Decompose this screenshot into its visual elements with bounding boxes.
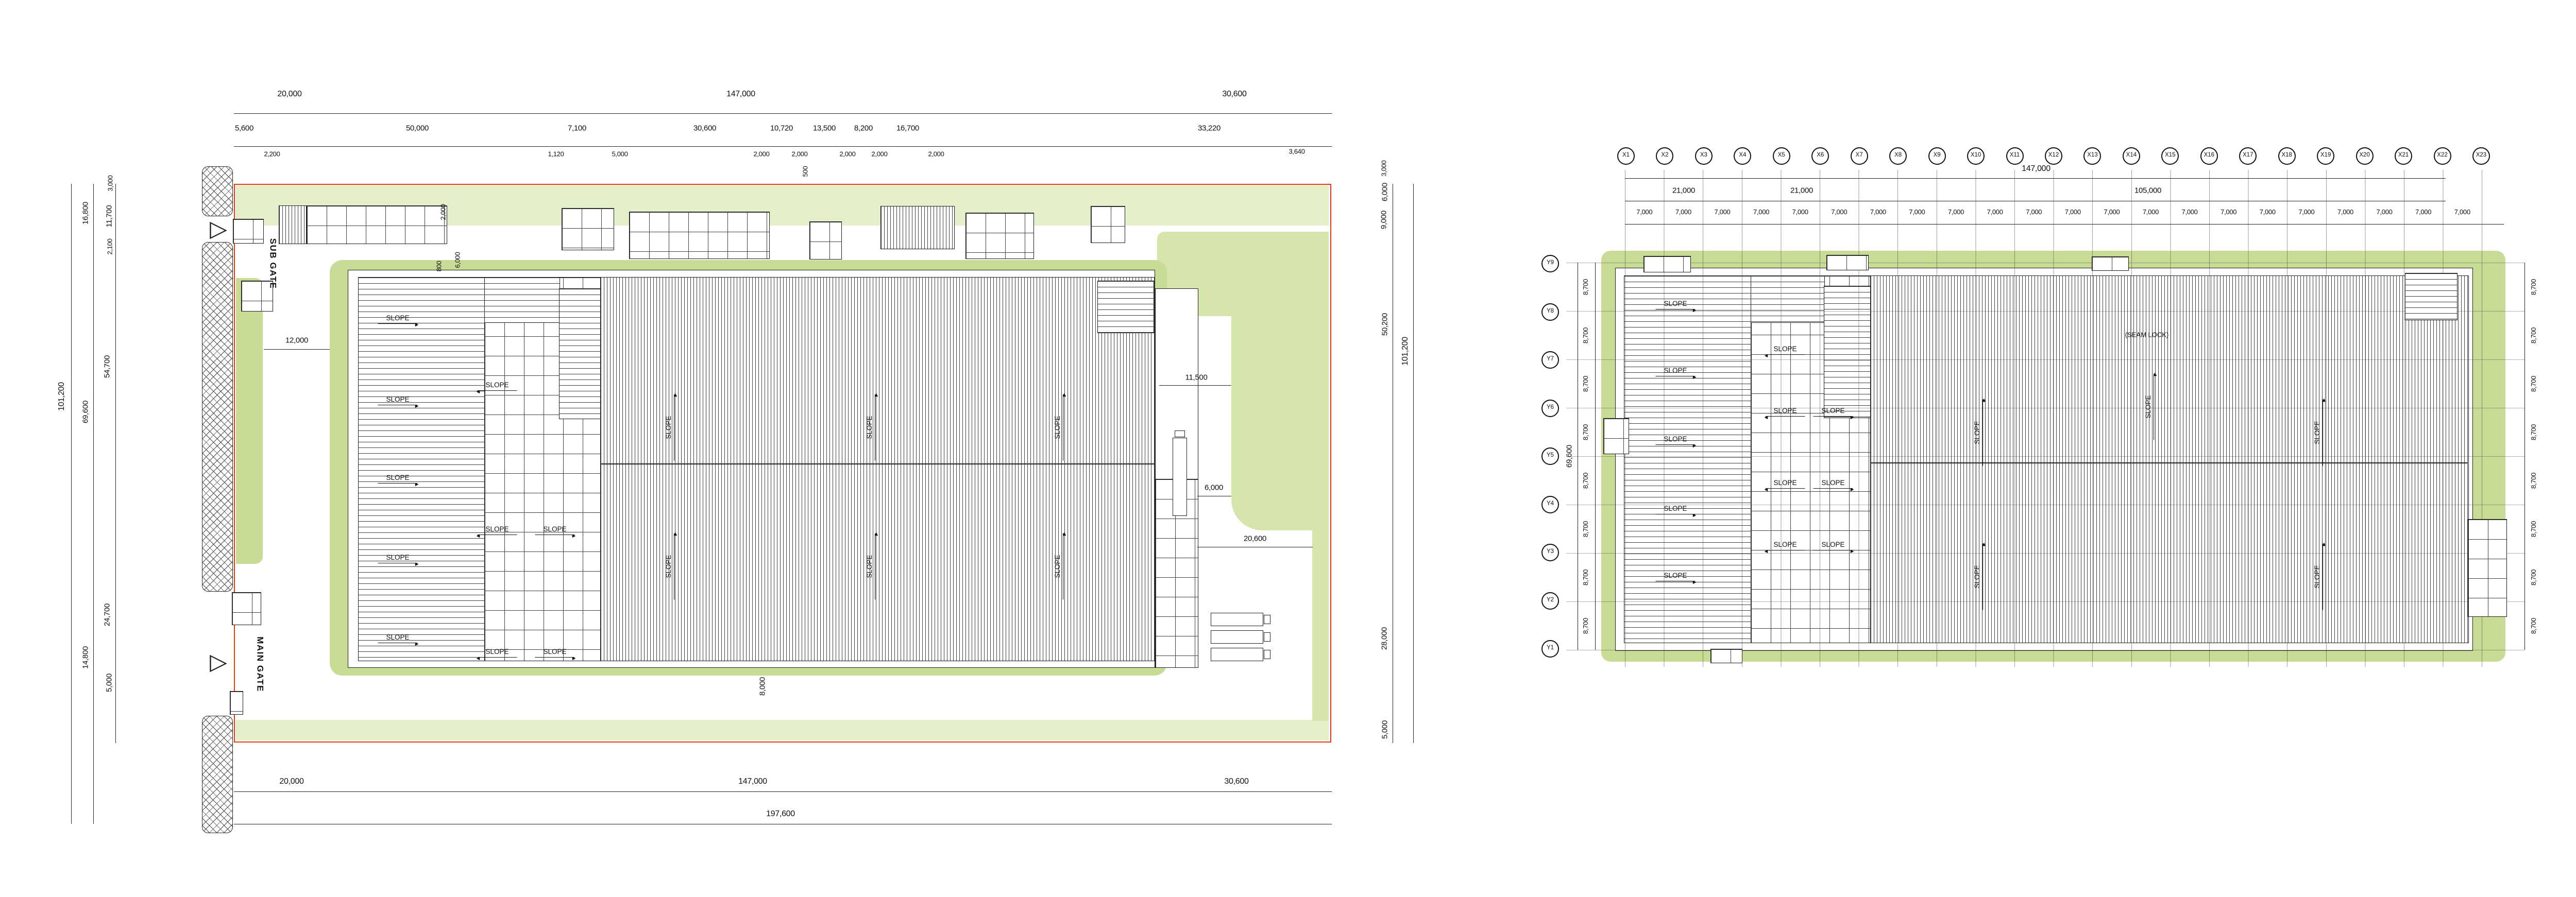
bay-dim: 8,700 [1579, 601, 1593, 650]
slope-label: SLOPE [1813, 479, 1853, 489]
bay-dim: 7,000 [2092, 209, 2131, 215]
dim-label: 69,600 [1566, 445, 1573, 468]
roof-west-block [1624, 275, 1752, 643]
bay-dim: 8,700 [1579, 456, 1593, 505]
bay-dim: 7,000 [1859, 209, 1898, 215]
slope-label: SLOPE [1655, 572, 1695, 581]
slope-label: SLOPE [1813, 407, 1853, 417]
grid-bubble: X2 [1656, 147, 1673, 165]
dim-line [1595, 263, 1596, 650]
bay-dim: 7,000 [1781, 209, 1820, 215]
slope-label: SLOPE [1765, 479, 1805, 489]
slope-label: SLOPE [1974, 543, 1983, 610]
grid-bubble: X12 [2045, 147, 2062, 165]
dim-line [1625, 178, 2446, 179]
grid-bubble: Y6 [1541, 400, 1559, 417]
bay-dim: 7,000 [2248, 209, 2287, 215]
grid-bubble: X9 [1928, 147, 1946, 165]
roof-aux-block [1603, 418, 1629, 454]
slope-label: SLOPE [1765, 407, 1805, 417]
slope-label: SLOPE [1765, 346, 1805, 355]
grid-bubble: Y9 [1541, 255, 1559, 272]
bay-dim: 7,000 [2443, 209, 2482, 215]
slope-label: SLOPE [1765, 541, 1805, 550]
bay-dims-8700-right: 8,7008,7008,7008,7008,7008,7008,7008,700 [2527, 263, 2541, 650]
grid-bubble: X15 [2161, 147, 2179, 165]
roof-ridge-line [1870, 462, 2468, 463]
bay-dim: 8,700 [1579, 263, 1593, 311]
grid-bubble: X6 [1811, 147, 1829, 165]
bay-dim: 8,700 [2527, 456, 2541, 505]
dim-label: 147,000 [2022, 165, 2050, 173]
grid-bubble: X1 [1617, 147, 1635, 165]
grid-bubble: Y1 [1541, 640, 1559, 658]
slope-label: SLOPE [1813, 541, 1853, 550]
bay-dims-8700-left: 8,7008,7008,7008,7008,7008,7008,7008,700 [1579, 263, 1593, 650]
bay-dim: 7,000 [1975, 209, 2014, 215]
bay-dim: 8,700 [1579, 553, 1593, 601]
roof-plan: X1X2X3X4X5X6X7X8X9X10X11X12X13X14X15X16X… [1468, 0, 2576, 897]
grid-bubble: X20 [2356, 147, 2374, 165]
bay-dim: 7,000 [1703, 209, 1742, 215]
grid-bubble: Y4 [1541, 496, 1559, 513]
bay-dim: 7,000 [1664, 209, 1703, 215]
bay-dim: 8,700 [2527, 263, 2541, 311]
bay-dim: 7,000 [2287, 209, 2326, 215]
grid-bubble: X8 [1889, 147, 1907, 165]
grid-bubble: X22 [2434, 147, 2451, 165]
grid-bubble: X21 [2395, 147, 2412, 165]
grid-bubble: Y3 [1541, 544, 1559, 561]
slope-label: SLOPE [2314, 543, 2323, 610]
slope-label: SLOPE [2145, 373, 2154, 440]
bay-dim: 7,000 [2131, 209, 2171, 215]
architectural-drawing-canvas: ▷ ▷ SUB GATE MAIN GATE [0, 0, 2576, 897]
roof-aux-block [1643, 256, 1691, 272]
dim-label: 21,000 [1672, 187, 1695, 195]
seam-lock-label: (SEAM LOCK) [2125, 332, 2169, 338]
grid-bubble: X17 [2239, 147, 2257, 165]
grid-bubble: X10 [1967, 147, 1985, 165]
bay-dim: 7,000 [1897, 209, 1937, 215]
grid-bubble: Y8 [1541, 303, 1559, 321]
bay-dim: 7,000 [2326, 209, 2365, 215]
grid-bubble: X18 [2278, 147, 2296, 165]
bay-dim: 7,000 [1820, 209, 1859, 215]
bay-dim: 8,700 [2527, 408, 2541, 456]
grid-bubble: X23 [2472, 147, 2490, 165]
slope-label: SLOPE [1655, 367, 1695, 376]
grid-bubble: X13 [2083, 147, 2101, 165]
bay-dim: 7,000 [2054, 209, 2093, 215]
grid-bubble: Y2 [1541, 592, 1559, 610]
grid-bubble: X11 [2006, 147, 2024, 165]
bay-dim: 8,700 [1579, 505, 1593, 553]
bay-dim: 8,700 [2527, 601, 2541, 650]
bay-dim: 7,000 [2170, 209, 2209, 215]
dim-line [1578, 263, 1578, 650]
grid-bubbles-x: X1X2X3X4X5X6X7X8X9X10X11X12X13X14X15X16X… [1617, 147, 2490, 165]
bay-dim: 8,700 [1579, 311, 1593, 359]
bay-dim: 7,000 [2365, 209, 2404, 215]
bay-dim: 8,700 [2527, 505, 2541, 553]
grid-bubble: X4 [1734, 147, 1751, 165]
slope-label: SLOPE [1655, 505, 1695, 514]
bay-dim: 8,700 [2527, 359, 2541, 408]
roof-aux-block [2405, 273, 2458, 320]
roof-center-subpanel [1824, 286, 1871, 418]
bay-dims-7000: 7,0007,0007,0007,0007,0007,0007,0007,000… [1625, 209, 2482, 215]
bay-dim: 8,700 [1579, 359, 1593, 408]
grid-bubble: X14 [2123, 147, 2140, 165]
bay-dim: 8,700 [2527, 553, 2541, 601]
roof-aux-block [2468, 519, 2507, 617]
roof-center-cap [1751, 275, 1825, 323]
grid-bubble: X16 [2200, 147, 2218, 165]
dim-label: 21,000 [1790, 187, 1813, 195]
slope-label: SLOPE [1655, 300, 1695, 309]
bay-dim: 7,000 [2209, 209, 2248, 215]
dim-line [2524, 263, 2525, 650]
bay-dim: 7,000 [1937, 209, 1976, 215]
slope-label: SLOPE [1655, 436, 1695, 445]
roof-aux-block [1826, 255, 1869, 270]
roof-aux-block [2092, 256, 2129, 271]
bay-dim: 7,000 [1742, 209, 1781, 215]
bay-dim: 8,700 [2527, 311, 2541, 359]
slope-label: SLOPE [1974, 399, 1983, 465]
roof-aux-block [1710, 649, 1742, 663]
grid-bubble: X19 [2317, 147, 2334, 165]
roof-east-block [1870, 275, 2469, 643]
dim-label: 105,000 [2134, 187, 2161, 195]
dim-line [1625, 201, 2446, 201]
bay-dim: 7,000 [2014, 209, 2054, 215]
grid-bubble: X3 [1695, 147, 1713, 165]
dim-line [1625, 224, 2504, 225]
bay-dim: 8,700 [1579, 408, 1593, 456]
slope-label: SLOPE [2314, 399, 2323, 465]
bay-dim: 7,000 [2404, 209, 2443, 215]
grid-bubble: X7 [1851, 147, 1868, 165]
grid-bubble: X5 [1773, 147, 1790, 165]
bay-dim: 7,000 [1625, 209, 1664, 215]
grid-bubbles-y: Y9Y8Y7Y6Y5Y4Y3Y2Y1 [1541, 255, 1557, 658]
grid-bubble: Y5 [1541, 447, 1559, 465]
grid-bubble: Y7 [1541, 351, 1559, 369]
